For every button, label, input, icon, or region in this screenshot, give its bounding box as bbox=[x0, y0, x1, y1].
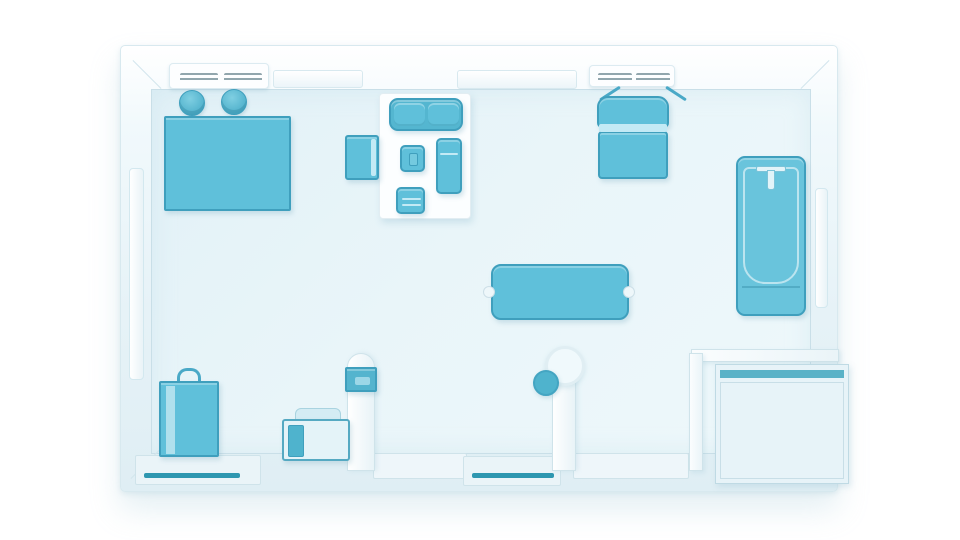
ac-vent-slats bbox=[636, 73, 670, 82]
bathroom-partition-wall bbox=[691, 349, 839, 362]
column-device-band bbox=[345, 367, 377, 392]
sofa-cushion bbox=[394, 103, 425, 126]
dining-table bbox=[491, 264, 629, 320]
bathtub-faucet-icon bbox=[767, 170, 775, 190]
bottom-window bbox=[463, 456, 561, 486]
table-edge-clip bbox=[483, 286, 495, 298]
wall-corner-seam bbox=[133, 60, 162, 89]
bottom-wall-recess bbox=[573, 453, 689, 479]
armchair bbox=[345, 135, 379, 180]
ac-vent-slats bbox=[224, 73, 262, 83]
floor-plan-canvas bbox=[0, 0, 960, 540]
sofa-cushion bbox=[428, 103, 459, 126]
top-window bbox=[273, 70, 363, 88]
bottom-window bbox=[135, 455, 261, 485]
shower-pan-inner bbox=[720, 382, 844, 479]
bag-highlight bbox=[166, 386, 175, 454]
ottoman-seam bbox=[402, 198, 421, 200]
bedside-stool bbox=[179, 90, 205, 116]
bedside-stool bbox=[221, 89, 247, 115]
table-edge-clip bbox=[623, 286, 635, 298]
bathroom-partition-wall bbox=[689, 353, 703, 471]
chaise-seam bbox=[440, 153, 458, 155]
wall-bed-blanket-fold bbox=[599, 124, 667, 132]
storage-box bbox=[282, 419, 350, 461]
bottom-wall-recess bbox=[373, 453, 467, 479]
box-side-panel bbox=[288, 425, 304, 457]
ottoman bbox=[396, 187, 425, 214]
coffee-table-tray bbox=[409, 153, 418, 166]
bathtub bbox=[736, 156, 806, 316]
shower-pan bbox=[715, 364, 849, 484]
ac-vent-slats bbox=[180, 73, 218, 83]
right-wall-window bbox=[815, 188, 828, 308]
floor-stool bbox=[533, 370, 559, 396]
chaise-seat bbox=[436, 138, 462, 194]
top-window bbox=[457, 70, 577, 89]
double-bed bbox=[164, 116, 291, 211]
ottoman-seam bbox=[402, 204, 421, 206]
bathtub-seam bbox=[742, 286, 800, 288]
wall-bed-mattress bbox=[598, 131, 668, 179]
apartment-outer-walls bbox=[120, 45, 838, 492]
air-conditioner-icon bbox=[589, 65, 675, 87]
shower-rail bbox=[720, 370, 844, 378]
armchair-arm bbox=[371, 139, 376, 176]
air-conditioner-icon bbox=[169, 63, 269, 89]
left-wall-window bbox=[129, 168, 144, 380]
ac-vent-slats bbox=[598, 73, 632, 82]
device-label-mark bbox=[355, 377, 370, 385]
coffee-table bbox=[400, 145, 425, 172]
loveseat-sofa bbox=[389, 98, 463, 131]
wall-corner-seam bbox=[801, 60, 830, 89]
window-sill-strip bbox=[472, 473, 554, 478]
tote-bag bbox=[159, 381, 219, 457]
window-sill-strip bbox=[144, 473, 240, 478]
